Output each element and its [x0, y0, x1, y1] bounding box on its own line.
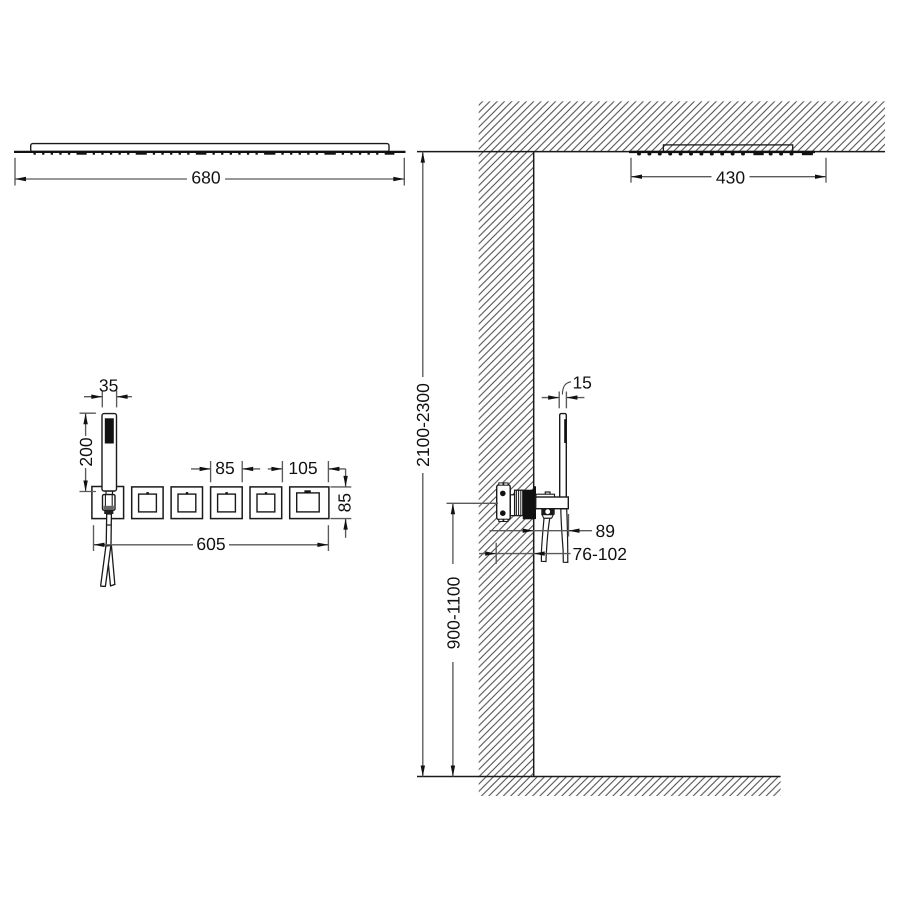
svg-text:200: 200 [76, 437, 96, 466]
svg-text:2100-2300: 2100-2300 [413, 383, 433, 467]
svg-text:15: 15 [572, 372, 591, 392]
svg-text:85: 85 [215, 458, 234, 478]
svg-text:900-1100: 900-1100 [443, 576, 463, 649]
svg-text:605: 605 [196, 534, 225, 554]
svg-text:76-102: 76-102 [573, 544, 628, 564]
svg-text:430: 430 [716, 167, 745, 187]
svg-text:85: 85 [334, 493, 354, 512]
svg-text:105: 105 [288, 458, 317, 478]
svg-text:680: 680 [191, 168, 220, 188]
svg-text:35: 35 [99, 375, 118, 395]
svg-text:89: 89 [596, 521, 615, 541]
